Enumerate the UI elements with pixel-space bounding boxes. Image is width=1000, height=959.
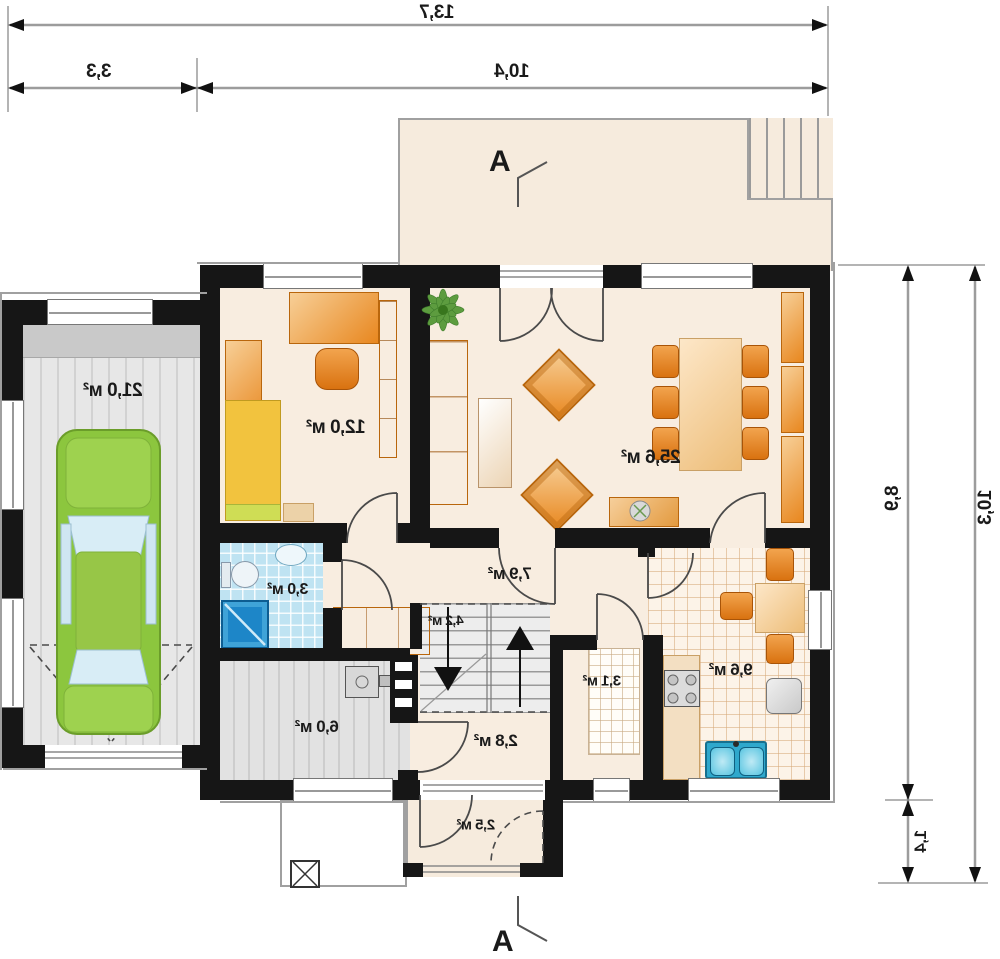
room-label-entry: 2,8 м² [474,731,518,751]
section-marker-top: A [489,145,510,179]
room-label-bathroom: 3,0 м² [268,581,309,599]
dim-total-width: 13,7 [420,2,455,24]
room-label-pantry: 3,1 м² [583,673,621,690]
dim-house-depth: 8,9 [882,486,904,511]
section-line-bottom [518,896,547,941]
room-label-kitchen: 9,6 м² [709,660,753,680]
dim-garage-width: 3,3 [87,61,112,83]
room-label-stairs: 4,2 м² [428,612,463,628]
room-label-bedroom: 12,0 м² [306,417,365,439]
plan-linework [0,0,1000,959]
stairs-up-arrow [506,626,534,650]
section-marker-bottom: A [492,925,513,959]
plant [422,289,464,331]
room-label-garage: 21,0 м² [83,380,142,402]
door-arcs [342,288,765,847]
dim-total-depth: 10,3 [975,490,997,525]
faucet [733,741,739,747]
room-label-porch: 2,5 м² [457,817,495,834]
dim-porch-depth: 1,4 [911,830,931,852]
dim-house-width: 10,4 [495,61,530,83]
boiler-dial [356,676,368,688]
car [57,430,160,734]
floor-plan: 21,0 м² 12,0 м² 25,6 м² 3,0 м² 7,9 м² 4,… [0,0,1000,959]
stove-burners [668,675,696,703]
room-label-living: 25,6 м² [621,447,680,469]
room-label-hall: 7,9 м² [488,564,532,584]
section-line-top [518,162,547,207]
room-label-boiler: 6,0 м² [295,717,339,737]
